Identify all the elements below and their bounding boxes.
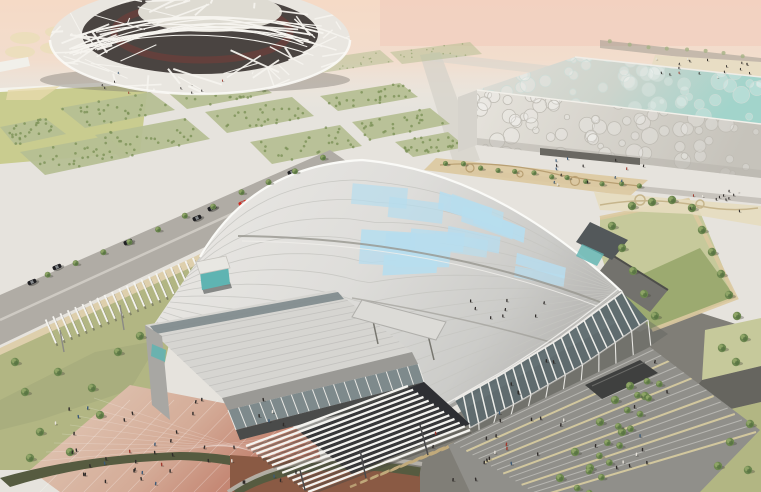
pink-haze-right (380, 0, 761, 46)
aerial-rendering-canvas (0, 0, 761, 492)
aerial-rendering (0, 0, 761, 492)
cube-left-face (458, 90, 477, 152)
